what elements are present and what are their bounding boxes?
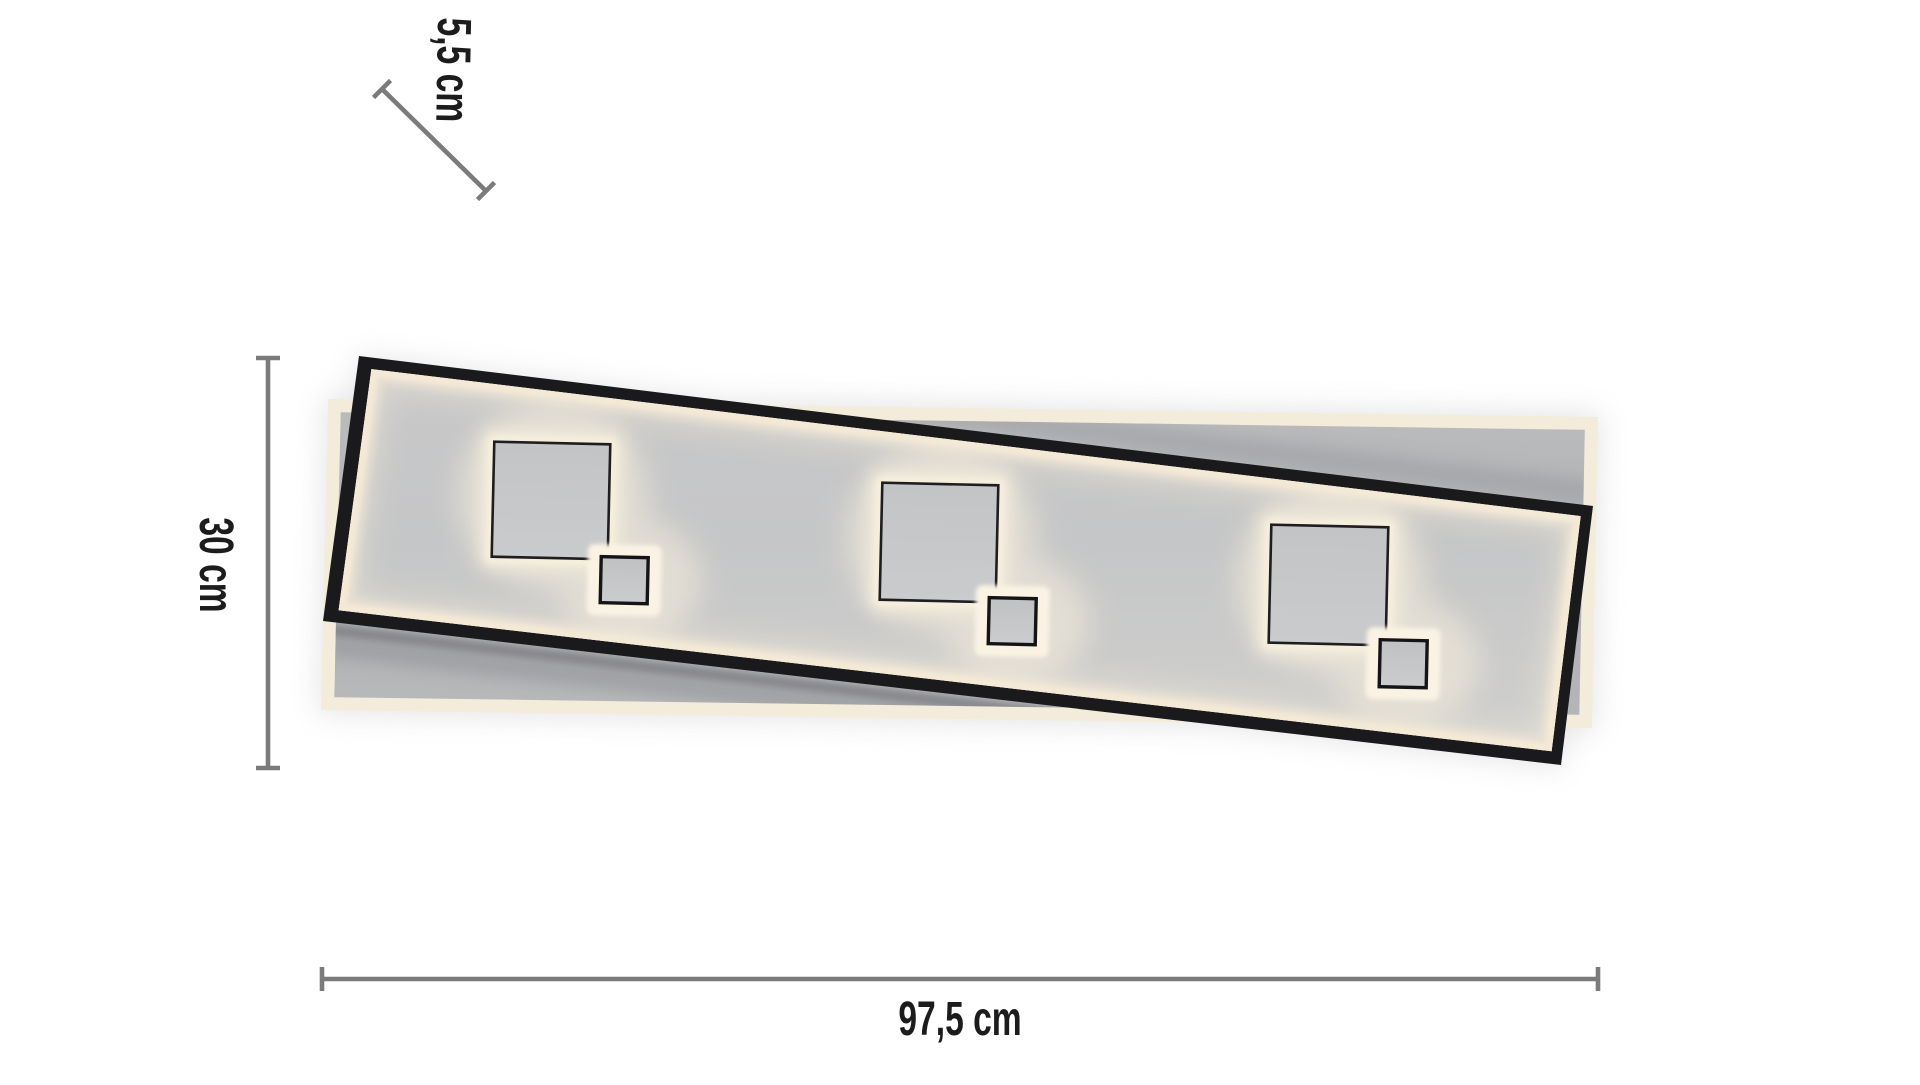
svg-text:30 cm: 30 cm xyxy=(190,517,244,612)
svg-text:5,5 cm: 5,5 cm xyxy=(426,17,482,123)
svg-text:97,5 cm: 97,5 cm xyxy=(898,991,1021,1045)
